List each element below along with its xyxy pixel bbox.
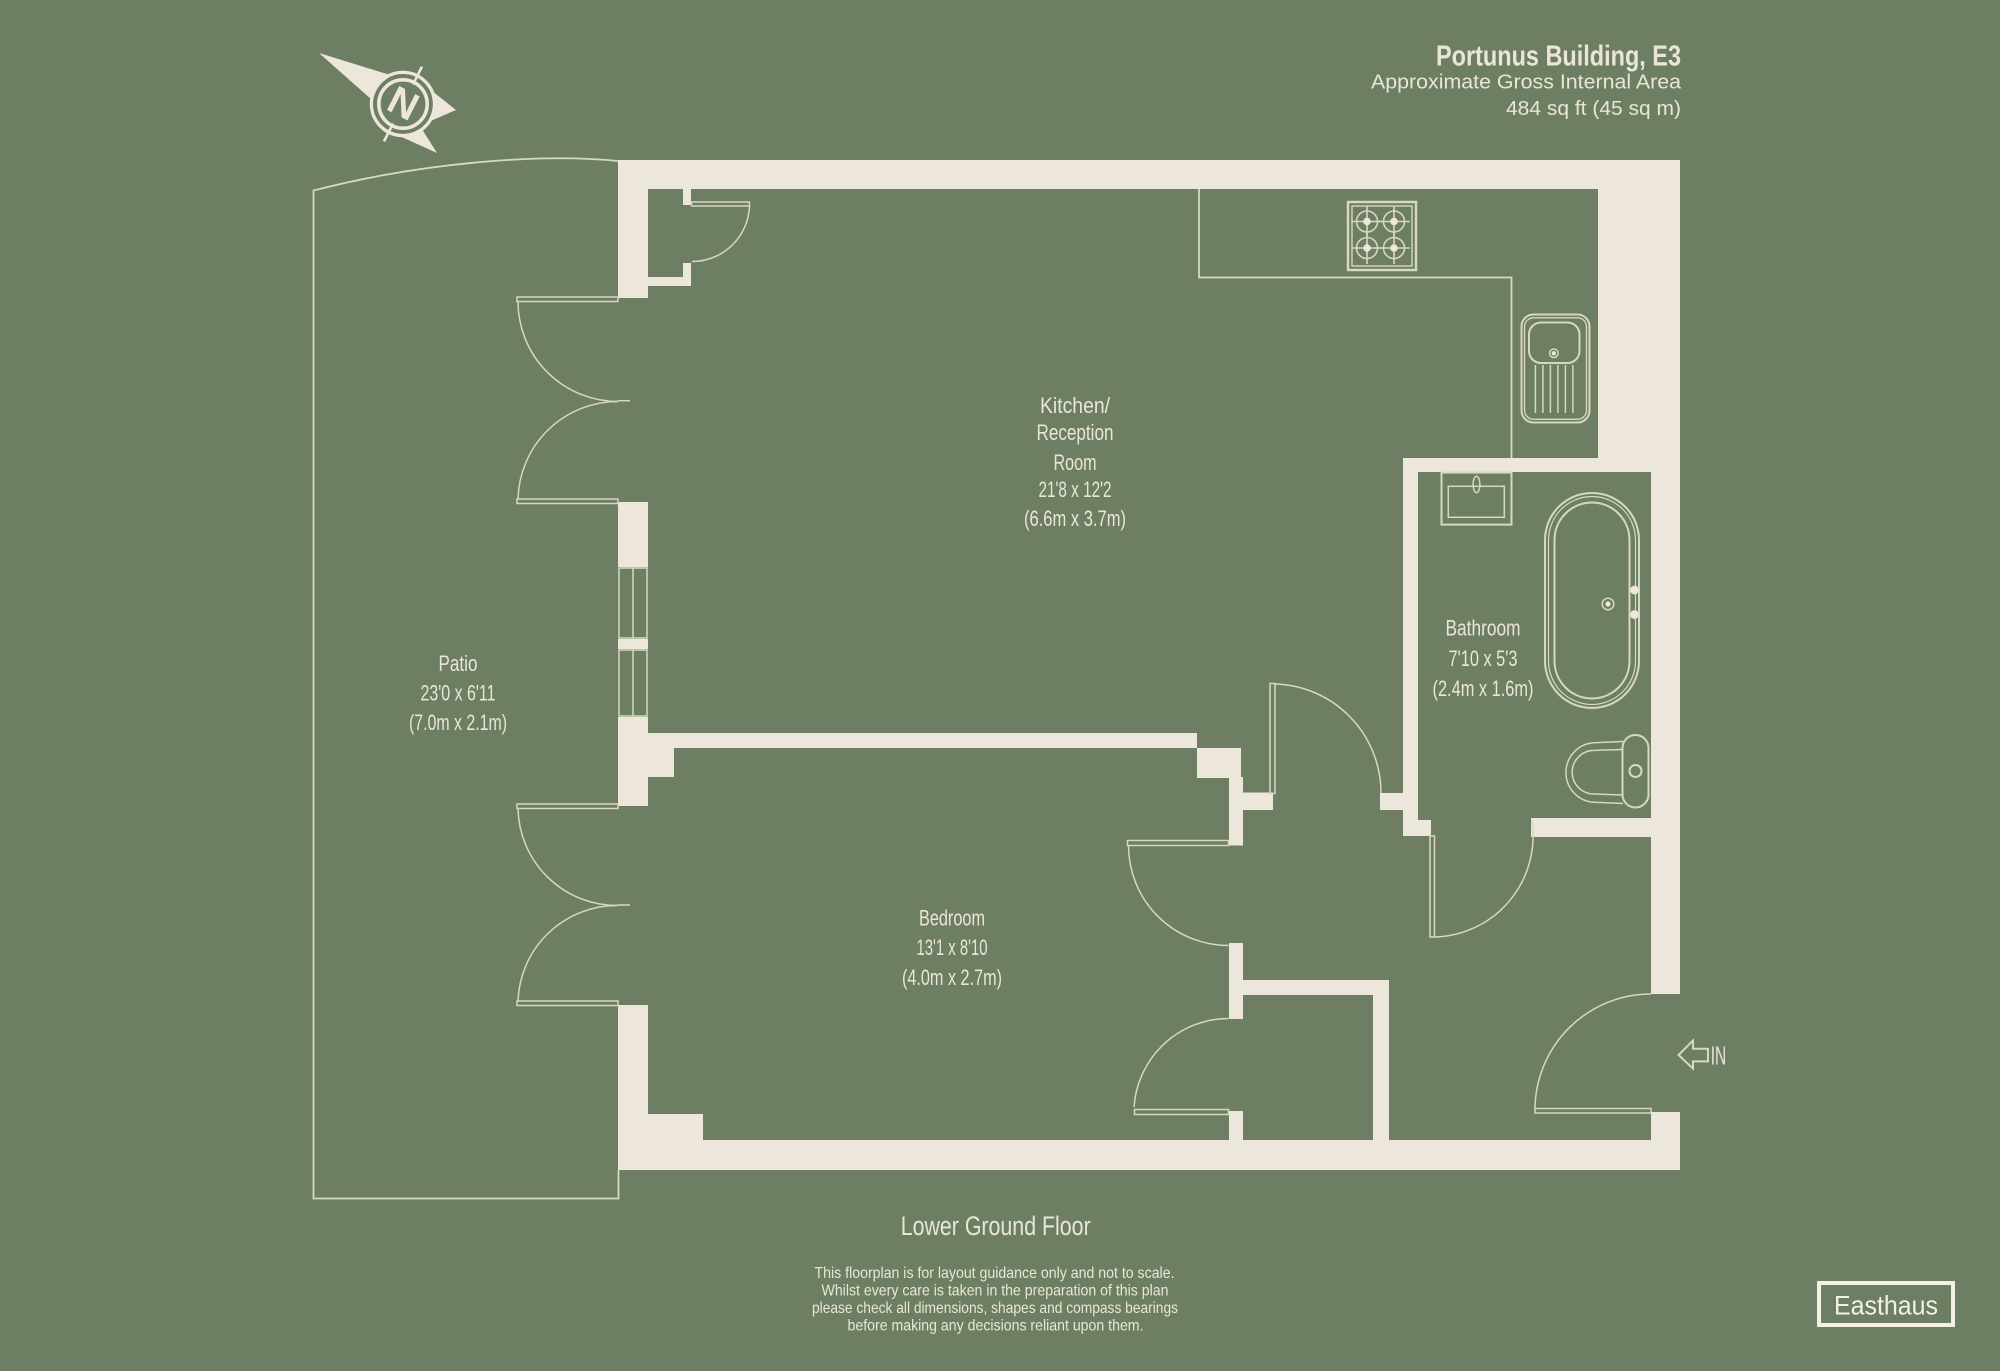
svg-text:21'8 x 12'2: 21'8 x 12'2	[1039, 477, 1112, 502]
svg-text:before making any decisions re: before making any decisions reliant upon…	[848, 1318, 1144, 1335]
svg-text:Room: Room	[1054, 450, 1097, 475]
svg-text:Bathroom: Bathroom	[1446, 616, 1521, 641]
svg-text:Approximate Gross Internal Are: Approximate Gross Internal Area	[1371, 71, 1682, 93]
svg-text:484 sq ft (45 sq m): 484 sq ft (45 sq m)	[1506, 98, 1681, 120]
svg-text:Bedroom: Bedroom	[919, 905, 985, 930]
svg-text:Whilst every care is taken in: Whilst every care is taken in the prepar…	[822, 1283, 1169, 1300]
svg-text:(2.4m x 1.6m): (2.4m x 1.6m)	[1433, 676, 1534, 701]
svg-text:Lower Ground Floor: Lower Ground Floor	[901, 1211, 1091, 1241]
svg-text:23'0 x 6'11: 23'0 x 6'11	[421, 681, 496, 706]
svg-text:Easthaus: Easthaus	[1834, 1291, 1938, 1321]
svg-text:Portunus Building, E3: Portunus Building, E3	[1436, 41, 1681, 73]
svg-text:Patio: Patio	[439, 651, 478, 676]
svg-text:This floorplan is for layout g: This floorplan is for layout guidance on…	[815, 1265, 1175, 1282]
svg-text:(6.6m x 3.7m): (6.6m x 3.7m)	[1024, 506, 1126, 531]
svg-text:Kitchen/: Kitchen/	[1040, 393, 1111, 418]
svg-text:IN: IN	[1711, 1041, 1727, 1071]
svg-text:7'10 x 5'3: 7'10 x 5'3	[1449, 646, 1518, 671]
svg-text:13'1 x 8'10: 13'1 x 8'10	[917, 935, 988, 960]
svg-text:please check all dimensions, s: please check all dimensions, shapes and …	[812, 1300, 1178, 1317]
svg-text:(7.0m x 2.1m): (7.0m x 2.1m)	[409, 710, 507, 735]
svg-text:Reception: Reception	[1037, 420, 1114, 445]
svg-text:(4.0m x 2.7m): (4.0m x 2.7m)	[902, 965, 1002, 990]
